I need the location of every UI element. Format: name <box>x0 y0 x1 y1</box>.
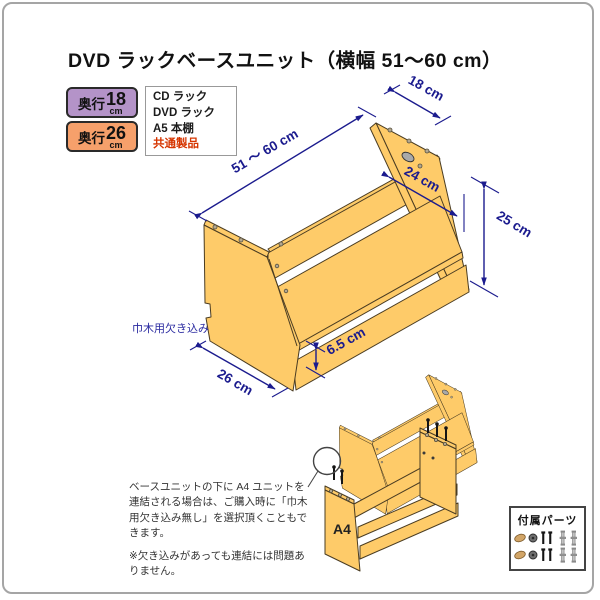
screw-hole <box>425 433 428 436</box>
dim-top-depth: 18 cm <box>384 72 451 125</box>
screw-hole <box>213 225 217 229</box>
dim-bottom-depth-label: 26 cm <box>215 366 256 398</box>
cam-hole <box>423 452 426 455</box>
screw-hole <box>279 242 283 246</box>
screw-hole <box>407 139 411 143</box>
dim-width: 51 ～ 60 cm <box>189 107 376 221</box>
cam-lock-center <box>531 537 534 540</box>
screw-hole <box>284 289 288 293</box>
screw-hole <box>443 442 446 445</box>
screw-bolt-icon <box>541 531 545 544</box>
dim-top-depth-label: 18 cm <box>406 72 447 104</box>
callout-leader-line <box>308 471 318 487</box>
screw-hole <box>338 493 341 496</box>
connector-bolt-icon <box>570 531 576 546</box>
cam-hole <box>432 457 435 460</box>
included-parts-title: 付属パーツ <box>511 512 584 528</box>
notch-label: 巾木用欠き込み <box>132 321 209 335</box>
screw-hole <box>388 128 392 132</box>
connection-note-paragraph-2: ※欠き込みがあっても連結には問題あ りません。 <box>129 549 308 580</box>
connection-note-paragraph-1: ベースユニットの下に A4 ユニットを 連結される場合は、ご購入時に「巾木 用欠… <box>129 480 308 542</box>
notch-callout-circle <box>314 448 341 475</box>
dim-height: 25 cm <box>470 177 535 297</box>
dim-width-label: 51 ～ 60 cm <box>229 126 301 176</box>
dim-height-label: 25 cm <box>494 208 535 241</box>
screw-hole <box>329 489 332 492</box>
screw-hole <box>346 497 349 500</box>
hardware-row <box>513 531 576 546</box>
screw-hole <box>239 238 243 242</box>
screw-hole <box>275 264 279 268</box>
included-parts-icons <box>512 528 584 568</box>
a4-unit-label: A4 <box>333 521 351 537</box>
included-parts-box: 付属パーツ <box>509 506 586 571</box>
screw-hole <box>425 149 429 153</box>
connection-note: ベースユニットの下に A4 ユニットを 連結される場合は、ご購入時に「巾木 用欠… <box>129 480 308 586</box>
connector-bolt-icon <box>559 531 565 546</box>
screw-bolt-icon <box>548 531 552 544</box>
hardware-row-2 <box>513 548 576 563</box>
screw-hole <box>434 438 437 441</box>
wooden-dowel-icon <box>513 533 526 543</box>
